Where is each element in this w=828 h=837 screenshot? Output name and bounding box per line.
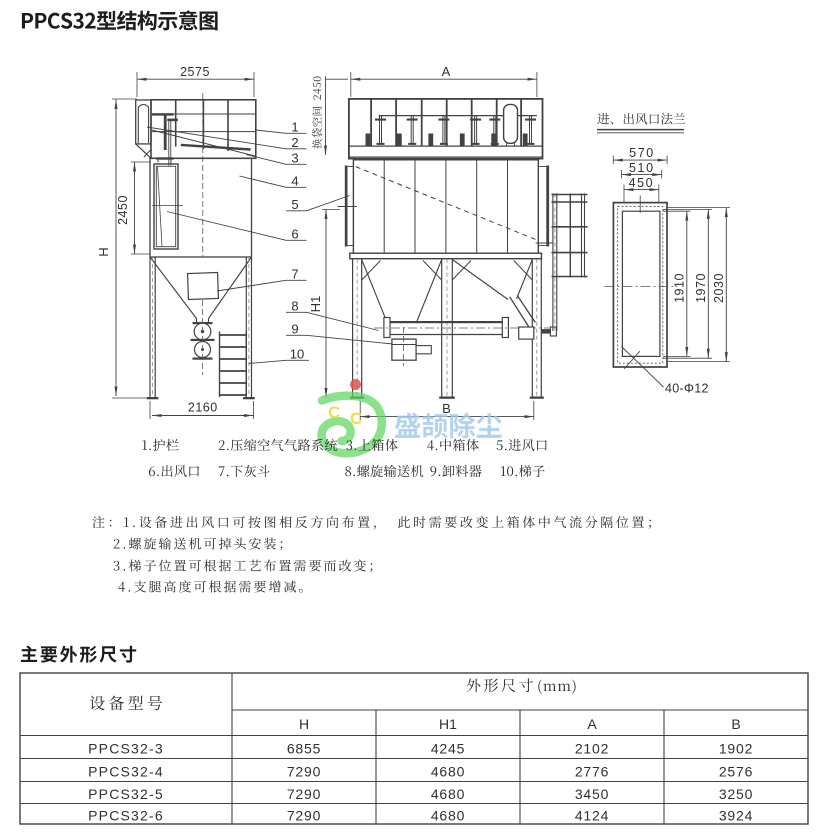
svg-text:H: H <box>299 716 309 732</box>
svg-text:A: A <box>442 64 451 79</box>
svg-text:PPCS32-6: PPCS32-6 <box>88 808 164 824</box>
svg-text:3924: 3924 <box>719 808 753 824</box>
svg-text:H1: H1 <box>308 296 323 313</box>
svg-text:7290: 7290 <box>287 786 321 802</box>
svg-text:6855: 6855 <box>287 741 321 757</box>
svg-text:PPCS32-5: PPCS32-5 <box>88 786 164 802</box>
svg-text:40-Φ12: 40-Φ12 <box>665 382 709 396</box>
svg-text:570: 570 <box>629 146 655 160</box>
svg-text:2776: 2776 <box>575 764 609 780</box>
svg-text:510: 510 <box>629 161 655 175</box>
svg-text:2575: 2575 <box>180 65 210 79</box>
svg-text:7290: 7290 <box>287 808 321 824</box>
svg-text:4680: 4680 <box>431 764 465 780</box>
svg-text:8: 8 <box>291 299 298 314</box>
svg-text:4680: 4680 <box>431 808 465 824</box>
svg-text:C: C <box>328 403 340 422</box>
svg-text:PPCS32-3: PPCS32-3 <box>88 741 164 757</box>
svg-text:PPCS32-4: PPCS32-4 <box>88 764 164 780</box>
svg-text:7290: 7290 <box>287 764 321 780</box>
svg-text:4: 4 <box>291 174 298 189</box>
svg-text:2160: 2160 <box>188 401 218 415</box>
svg-text:3250: 3250 <box>719 786 753 802</box>
svg-text:A: A <box>587 716 597 732</box>
svg-text:2102: 2102 <box>575 741 609 757</box>
svg-text:C: C <box>350 409 362 428</box>
svg-text:1970: 1970 <box>694 273 708 303</box>
svg-text:10: 10 <box>290 347 304 362</box>
svg-text:B: B <box>731 716 740 732</box>
svg-text:1: 1 <box>291 120 298 135</box>
svg-text:H1: H1 <box>439 716 457 732</box>
svg-text:450: 450 <box>629 176 655 190</box>
svg-text:4680: 4680 <box>431 786 465 802</box>
svg-text:2450: 2450 <box>116 195 130 225</box>
svg-text:2030: 2030 <box>712 273 726 303</box>
svg-text:6: 6 <box>291 227 298 242</box>
svg-text:H: H <box>96 247 111 256</box>
svg-text:1902: 1902 <box>719 741 753 757</box>
svg-text:B: B <box>442 401 451 416</box>
svg-text:5: 5 <box>291 197 298 212</box>
svg-text:2: 2 <box>291 135 298 150</box>
svg-text:9: 9 <box>291 322 298 337</box>
svg-text:2576: 2576 <box>719 764 753 780</box>
svg-text:1910: 1910 <box>673 273 687 303</box>
svg-text:3: 3 <box>291 151 298 166</box>
svg-text:4245: 4245 <box>431 741 465 757</box>
svg-text:3450: 3450 <box>575 786 609 802</box>
svg-text:7: 7 <box>291 267 298 282</box>
svg-text:4124: 4124 <box>575 808 609 824</box>
